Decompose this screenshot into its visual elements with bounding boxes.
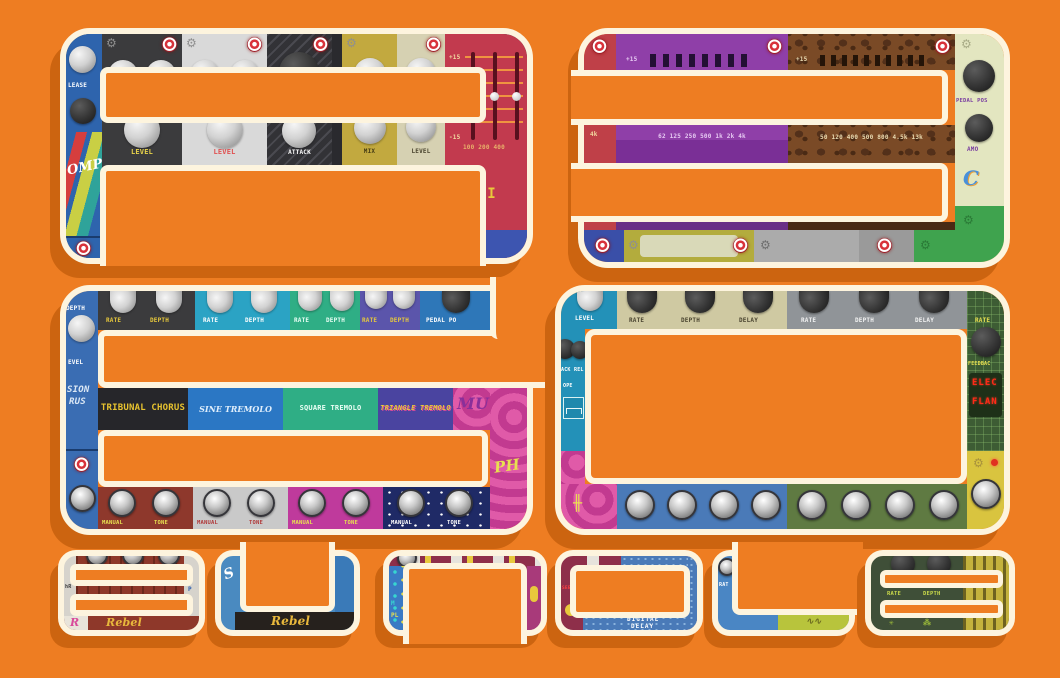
knob-label: LEASE: [68, 82, 87, 89]
knob: [251, 291, 277, 313]
power-icon: [162, 37, 177, 52]
letter-counter: [570, 565, 690, 618]
squiggle: ∿∿: [806, 617, 821, 627]
letter-right-column: [335, 556, 354, 612]
knob: [298, 291, 322, 311]
segment-cutout: [585, 329, 967, 484]
knob: [971, 479, 1001, 509]
letter-e: RATE DEPTH ✳ ⁂: [865, 550, 1015, 636]
letter-n: M PL: [383, 550, 547, 636]
knob-label: PEDAL POS: [956, 98, 988, 104]
eq-slider: [741, 54, 747, 67]
gear-icon: ⚙: [760, 239, 771, 251]
segment-cutout: [98, 430, 488, 487]
segment-cutout-open-left: [571, 70, 948, 125]
bar-top: +15 +15: [584, 34, 955, 70]
knob-label: LEVEL: [397, 148, 445, 155]
knob-label: DEPTH: [681, 317, 700, 324]
flower-icon: ✳: [889, 618, 894, 627]
script-logo: Rebel: [271, 614, 310, 628]
letter-notch-open-top: [240, 542, 335, 612]
knob: [207, 291, 233, 313]
knob-label: DEPTH: [150, 317, 169, 324]
knob: [709, 490, 739, 520]
knob: [342, 489, 370, 517]
letter-notch-open-bottom: [403, 563, 527, 644]
power-icon: [426, 37, 441, 52]
knob: [330, 291, 354, 311]
knob: [69, 46, 96, 73]
segment-cutout-open-bottom: [100, 165, 486, 266]
knob-label: RATE: [887, 591, 901, 597]
gear-icon: ⚙: [186, 37, 197, 49]
knob-label: LEVEL: [575, 315, 594, 322]
knob-label: TONE: [344, 520, 358, 526]
knob: [625, 490, 655, 520]
knob: [298, 489, 326, 517]
led-indicator: [991, 459, 998, 466]
eq-slider: [715, 54, 721, 67]
knob-label: MIX: [342, 148, 397, 155]
glyph-art: +15 +15: [578, 28, 1010, 268]
knob: [885, 490, 915, 520]
pedal-logo-panel: TRIBUNAL CHORUS: [98, 388, 188, 430]
letter-bottom-strip: R Rebel: [64, 616, 199, 630]
knob: [110, 291, 136, 313]
pedal-logo: PH: [493, 455, 521, 476]
letter-right-column: [527, 566, 541, 630]
knob-label: AMO: [967, 146, 978, 153]
tiny-text: PL: [391, 612, 399, 619]
pattern-blob: [530, 586, 538, 602]
tiny-text: hR: [65, 584, 71, 590]
power-icon: [592, 39, 607, 54]
knob: [247, 489, 275, 517]
letter-u: S Rebel: [215, 550, 360, 636]
knob-label: ATTACK: [267, 149, 332, 156]
eq-slider-handle: [512, 92, 521, 101]
eq-freq-labels: 50 120 400 500 800 4.5k 13k: [788, 134, 955, 141]
glyph-bottom-left: DEPTH EVEL SION RUS RATE DEPTH: [60, 285, 533, 535]
letter-bottom-strip: ∿∿: [778, 615, 849, 630]
eq-slider: [886, 55, 891, 66]
knob-label: MANUAL: [102, 520, 123, 526]
pedal-edge: [616, 222, 788, 230]
led-text: FLAN: [972, 397, 998, 407]
pedal-purple-eq: +15: [616, 34, 788, 70]
knob: [365, 291, 387, 309]
eq-slider: [650, 54, 656, 67]
pedal-envelope: LEVEL: [561, 291, 617, 329]
gear-icon: ⚙: [106, 37, 117, 49]
gear-icon: ⚙: [963, 214, 974, 226]
pedal-envelope-side: ACK REL OPE: [561, 329, 585, 451]
eq-slider: [728, 54, 734, 67]
pedal-edge: [788, 222, 955, 230]
eq-slider: [831, 55, 836, 66]
pedal-pink-side: [561, 451, 585, 484]
pedal-olive-side: [963, 556, 1009, 630]
bar-top: LEVEL RATE DEPTH DELAY RATE DEPTH DELA: [561, 291, 967, 329]
eq-slider: [676, 54, 682, 67]
pedal-logo: MU: [457, 394, 489, 413]
knob: [203, 489, 231, 517]
flower-icon: ⁂: [923, 618, 931, 627]
letter-notch: [880, 600, 1003, 618]
script-logo: Rebel: [106, 616, 142, 629]
knob-label: PEDAL PO: [426, 317, 457, 324]
knob-label: RATE: [629, 317, 644, 324]
pedal-brown-eq: 50 120 400 500 800 4.5k 13k: [788, 125, 955, 163]
segment-cutout-open-right: [98, 330, 545, 388]
pedal-pink: ╫: [561, 484, 617, 529]
segment-cutout-open-left: [571, 163, 948, 222]
knob-label: FEEDBAC: [968, 361, 990, 367]
knob-label: DEPTH: [326, 317, 345, 324]
knob: [859, 291, 889, 313]
pedal-logo-panel: TRIANGLE TREMOLO: [378, 388, 453, 430]
power-icon: [595, 238, 610, 253]
pedal-logo: RUS: [69, 397, 86, 407]
pedal-row-top: RATE DEPTH RATE DEPTH RATE DEPTH: [98, 291, 490, 330]
eq-freq-label: 4k: [590, 131, 598, 138]
knob: [152, 489, 180, 517]
knob-label: TONE: [154, 520, 168, 526]
pedal-red-eq: [584, 34, 616, 70]
pedal-logo-panel: SINE TREMOLO: [188, 388, 283, 430]
pedal-brown-eq: +15: [788, 34, 955, 70]
pedal-tremolo: RATE DEPTH: [360, 291, 420, 330]
scribble: S: [222, 565, 237, 584]
tiny-text: M: [391, 600, 395, 607]
corner-cutout-open-top-right: [490, 277, 545, 339]
power-icon: [74, 457, 89, 472]
eq-slider: [897, 55, 902, 66]
knob: [971, 327, 1001, 357]
bar-bottom: ⚙ ⚙ ⚙: [584, 222, 955, 262]
knob-label: RATE: [362, 317, 377, 324]
eq-slider-handle: [490, 92, 499, 101]
eq-slider-tops: [650, 54, 770, 67]
glyph-art: DEPTH EVEL SION RUS RATE DEPTH: [60, 285, 533, 535]
power-icon: [313, 37, 328, 52]
pedal-bottom: MANUAL TONE: [193, 487, 288, 529]
pedal-bottom: MANUAL TONE: [383, 487, 490, 529]
eq-gain-min: -15: [449, 134, 460, 141]
letter-art: hR P R Rebel: [58, 550, 205, 636]
pedal-gray: ⚙: [754, 230, 859, 262]
gear-icon: ⚙: [346, 37, 357, 49]
pedal-beige: RATE DEPTH DELAY: [617, 291, 787, 329]
knob-label: DEPTH: [855, 317, 874, 324]
dancer-figure-icon: ╫: [573, 494, 582, 512]
poster-canvas: LEASE OMP ⚙ LEVEL: [0, 0, 1060, 678]
knob: [108, 489, 136, 517]
knob: [929, 490, 959, 520]
power-icon: [733, 238, 748, 253]
pedal-blue: [617, 484, 787, 529]
knob: [442, 291, 470, 313]
pedal-bottom: MANUAL TONE: [288, 487, 383, 529]
eq-slider: [702, 54, 708, 67]
knob-label: RAT: [719, 582, 729, 588]
pedal-red-eq: 4k: [584, 125, 616, 163]
letter-notch-open-top-right: [732, 542, 863, 615]
power-icon: [76, 241, 91, 256]
pedal-wah: PEDAL PO: [420, 291, 490, 330]
gear-icon: ⚙: [961, 38, 972, 50]
knob-label: DEPTH: [390, 317, 409, 324]
glyph-top-left: LEASE OMP ⚙ LEVEL: [60, 28, 533, 264]
letter-l: RAT ∿∿: [712, 550, 855, 636]
eq-slider: [842, 55, 847, 66]
pedal-tremolo: RATE DEPTH: [98, 291, 195, 330]
script-logo: R: [70, 616, 79, 629]
pedal-logo-panel: SQUARE TREMOLO: [283, 388, 378, 430]
knob-label: DEPTH: [923, 591, 941, 597]
eq-slider: [875, 55, 880, 66]
pedal-purple-eq: 62 125 250 500 1k 2k 4k: [616, 125, 788, 163]
letter-bottom-strip: Rebel: [235, 612, 354, 630]
bar-middle: 4k 62 125 250 500 1k 2k 4k 50 120 400 50…: [584, 125, 955, 163]
eq-freq-labels: 62 125 250 500 1k 2k 4k: [616, 133, 788, 140]
pedal-logo: SION: [67, 385, 89, 395]
knob: [445, 489, 473, 517]
pedal-row-bottom: MANUAL TONE MANUAL TONE MANUAL TONE: [98, 487, 490, 529]
strip-end: R: [64, 616, 88, 630]
pedal-comp: LEASE OMP: [66, 34, 102, 258]
knob-label: EVEL: [68, 359, 83, 366]
pedal-logo: TRIANGLE TREMOLO: [380, 405, 451, 413]
tiny-text: P: [188, 586, 192, 593]
pedal-divider: [66, 449, 98, 451]
pedal-logo: TRIBUNAL CHORUS: [101, 404, 185, 413]
pedal-edge: [584, 222, 616, 230]
knob: [685, 291, 715, 313]
knob: [965, 114, 993, 142]
eq-slider: [908, 55, 913, 66]
knob-label: MANUAL: [292, 520, 313, 526]
pedal-chorus: DEPTH EVEL SION RUS: [66, 291, 98, 529]
eq-slider: [919, 55, 924, 66]
knob: [919, 291, 949, 313]
pedal-logo: OMP: [66, 156, 104, 178]
segment-cutout: [100, 67, 486, 123]
eq-slider: [864, 55, 869, 66]
pedal-tremolo: RATE DEPTH: [195, 291, 290, 330]
knob: [667, 490, 697, 520]
bar-bottom: ╫: [561, 484, 967, 529]
led-text: ELEC: [972, 378, 998, 388]
pedal-pale: ⚙ PEDAL POS AMO C ⚙: [955, 34, 1004, 262]
knob: [397, 489, 425, 517]
pedal-blue: [584, 230, 624, 262]
knob-label: LEVEL: [102, 148, 182, 156]
knob-label: DELAY: [915, 317, 934, 324]
glyph-top-right: +15 +15: [578, 28, 1010, 268]
gear-icon: ⚙: [920, 239, 931, 251]
knob-label: TONE: [249, 520, 263, 526]
letter-counter: [70, 564, 193, 586]
letter-counter: [70, 594, 193, 616]
letter-b: hR P R Rebel: [58, 550, 205, 636]
knob-label: RATE: [801, 317, 816, 324]
knob: [799, 291, 829, 313]
knob-label: REL: [574, 367, 584, 373]
knob-label: TONE: [447, 520, 461, 526]
pedal-gray-2: [859, 230, 914, 262]
pedal-gray: RATE DEPTH DELAY: [787, 291, 967, 329]
knob-label: RATE: [106, 317, 121, 324]
knob: [69, 485, 96, 512]
pedal-flanger: RATE FEEDBAC ELEC FLAN: [967, 291, 1004, 451]
pedal-row: ⚙ ⚙ ⚙: [584, 230, 955, 262]
waveform-display: [563, 397, 584, 419]
knob: [68, 315, 95, 342]
knob: [627, 291, 657, 313]
knob-label: RATE: [203, 317, 218, 324]
power-icon: [247, 37, 262, 52]
waveform-trace: [566, 408, 582, 414]
eq-slider: [689, 54, 695, 67]
pedal-green: [787, 484, 967, 529]
knob: [393, 291, 415, 309]
power-icon: [767, 39, 782, 54]
pedal-green-footer: ⚙: [955, 206, 1004, 262]
power-icon: [935, 39, 950, 54]
pedal-olive: ⚙: [624, 230, 754, 262]
pedal-green: ⚙: [914, 230, 955, 262]
knob-label: RATE: [294, 317, 309, 324]
knob-label: MANUAL: [391, 520, 412, 526]
pedal-footer: [66, 236, 102, 260]
knob-label: DEPTH: [245, 317, 264, 324]
knob: [156, 291, 182, 313]
letter-d: SEE DIGITAL DELAY: [555, 550, 703, 636]
knob: [743, 291, 773, 313]
glyph-bottom-right: LEVEL RATE DEPTH DELAY RATE DEPTH DELA: [555, 285, 1010, 535]
power-icon: [877, 238, 892, 253]
pedal-yellow: ⚙: [967, 451, 1004, 529]
pedal-logo-panel: MU: [453, 388, 490, 430]
knob-label: ACK: [561, 367, 571, 373]
knob-label: DELAY: [739, 317, 758, 324]
brand-logo: C: [963, 166, 979, 190]
knob-label: RATE: [975, 317, 990, 324]
eq-slider: [853, 55, 858, 66]
knob-label: DEPTH: [66, 305, 85, 312]
knob-label: MANUAL: [197, 520, 218, 526]
pedal-bottom: MANUAL TONE: [98, 487, 193, 529]
letter-notch: [880, 570, 1003, 588]
dot-matrix-text: DELAY: [631, 623, 654, 630]
knob-label: LEVEL: [182, 148, 267, 156]
eq-gain-max: +15: [626, 56, 637, 63]
gear-icon: ⚙: [973, 457, 984, 469]
eq-slider: [663, 54, 669, 67]
eq-gain-max: +15: [449, 54, 460, 61]
gear-icon: ⚙: [628, 239, 639, 251]
led-display: ELEC FLAN: [969, 373, 1002, 417]
knob: [70, 98, 96, 124]
pedal-logo: SQUARE TREMOLO: [300, 405, 362, 413]
knob: [797, 490, 827, 520]
logo-row: TRIBUNAL CHORUS SINE TREMOLO SQUARE TREM…: [98, 388, 490, 430]
eq-freq-labels: 100 200 400: [463, 144, 505, 151]
eq-slider: [820, 55, 825, 66]
pedal-tremolo: RATE DEPTH: [290, 291, 360, 330]
knob: [841, 490, 871, 520]
knob: [963, 60, 995, 92]
knob-label: OPE: [563, 383, 573, 389]
pedal-bottom-edges: [584, 222, 955, 230]
pedal-inset: [640, 235, 738, 257]
eq-slider-tops: [820, 55, 930, 66]
letter-art: RATE DEPTH ✳ ⁂: [865, 550, 1015, 636]
eq-gain-max: +15: [796, 56, 807, 63]
knob: [751, 490, 781, 520]
pedal-stripes: OMP: [66, 132, 102, 236]
knob: [577, 291, 603, 311]
pedal-logo: SINE TREMOLO: [199, 404, 272, 414]
